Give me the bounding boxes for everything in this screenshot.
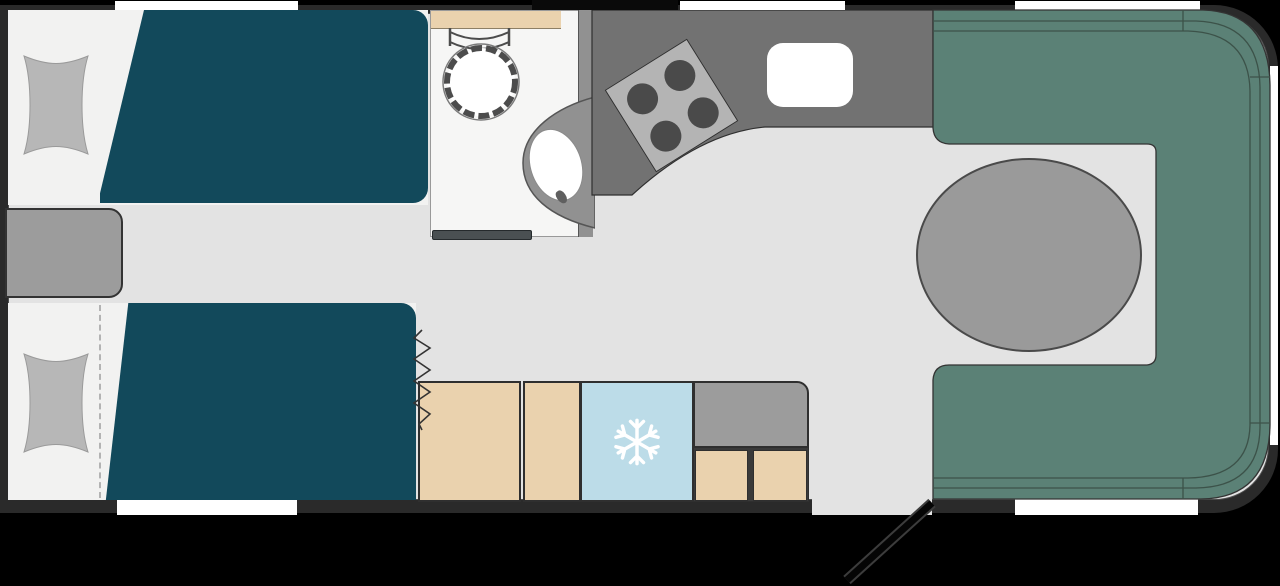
kitchen-side-unit xyxy=(693,381,809,448)
caravan-floorplan xyxy=(0,0,1280,586)
burner-icon xyxy=(621,77,664,120)
bed-top-duvet xyxy=(100,10,428,203)
window-bottom-left xyxy=(117,499,297,515)
entrance-door-swing-line xyxy=(835,496,940,586)
washroom-sliding-door xyxy=(432,230,532,240)
burner-icon xyxy=(659,54,702,97)
drawer-right xyxy=(753,450,807,501)
burner-icon xyxy=(645,115,688,158)
lounge-table xyxy=(916,158,1142,352)
fridge xyxy=(580,381,694,502)
bed-bottom-duvet xyxy=(104,303,416,500)
bed-top-sheet-fold xyxy=(100,10,150,203)
burner-icon xyxy=(682,91,725,134)
wardrobe-right xyxy=(523,381,581,502)
kitchen-sink xyxy=(767,43,853,107)
snowflake-icon xyxy=(611,416,663,468)
pillow-bottom xyxy=(16,348,96,458)
bed-bottom-fold-line xyxy=(99,305,101,498)
bedside-chest xyxy=(5,208,123,298)
bed-bottom-sheet-fold xyxy=(104,303,130,500)
folding-partition-symbol xyxy=(411,328,435,432)
drawer-left xyxy=(695,450,748,501)
pillow-top xyxy=(16,50,96,160)
